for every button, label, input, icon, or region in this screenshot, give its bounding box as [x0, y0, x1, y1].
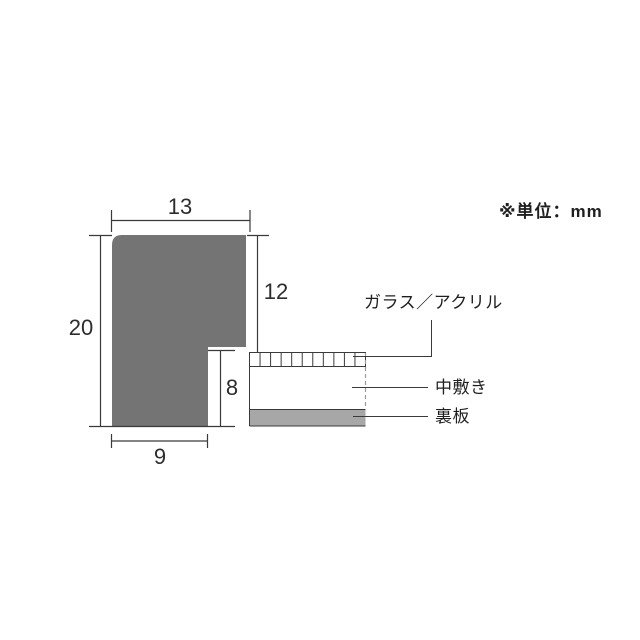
diagram-geometry: [0, 0, 640, 640]
dim-lower-inner-value: 8: [226, 377, 238, 399]
glass-hatch-lines: [260, 353, 355, 367]
unit-note: ※単位：mm: [499, 203, 603, 220]
glass-leader-line: [353, 320, 432, 357]
glass-label: ガラス／アクリル: [364, 294, 503, 311]
dim-rabbet-depth-value: 12: [264, 281, 288, 303]
dim-top-width-value: 13: [168, 196, 192, 218]
backboard-shape: [250, 410, 366, 427]
glass-strip: [250, 353, 366, 367]
backboard-label: 裏板: [435, 408, 470, 425]
frame-cross-section-diagram: ※単位：mm 13 20 12 8 9 ガラス／アクリル 中敷き 裏板: [0, 0, 640, 640]
dim-left-height-value: 20: [69, 317, 93, 339]
mat-label: 中敷き: [435, 379, 488, 396]
dim-bottom-width-value: 9: [154, 446, 166, 468]
